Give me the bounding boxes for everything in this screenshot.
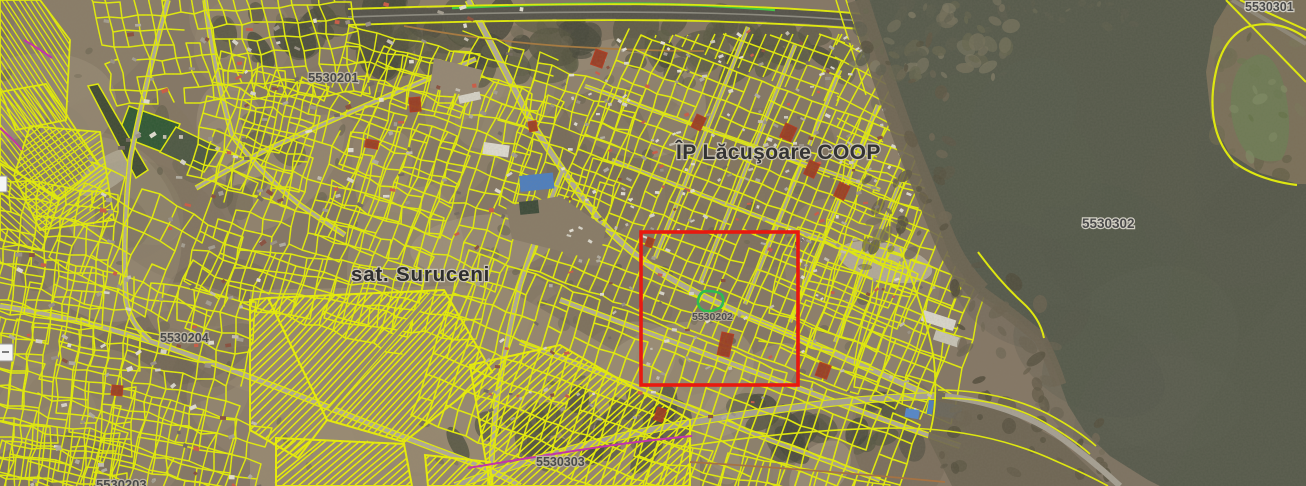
svg-text:5530202: 5530202: [692, 311, 733, 323]
svg-text:sat. Suruceni: sat. Suruceni: [351, 263, 490, 286]
svg-text:ÎP Lăcuşoare COOP: ÎP Lăcuşoare COOP: [675, 140, 881, 164]
svg-text:5530301: 5530301: [1245, 0, 1294, 14]
svg-text:5530201: 5530201: [308, 70, 359, 85]
svg-text:5530302: 5530302: [1082, 216, 1135, 231]
svg-text:5530203: 5530203: [96, 477, 147, 486]
svg-text:5530303: 5530303: [536, 455, 585, 469]
svg-text:5530204: 5530204: [160, 331, 209, 345]
